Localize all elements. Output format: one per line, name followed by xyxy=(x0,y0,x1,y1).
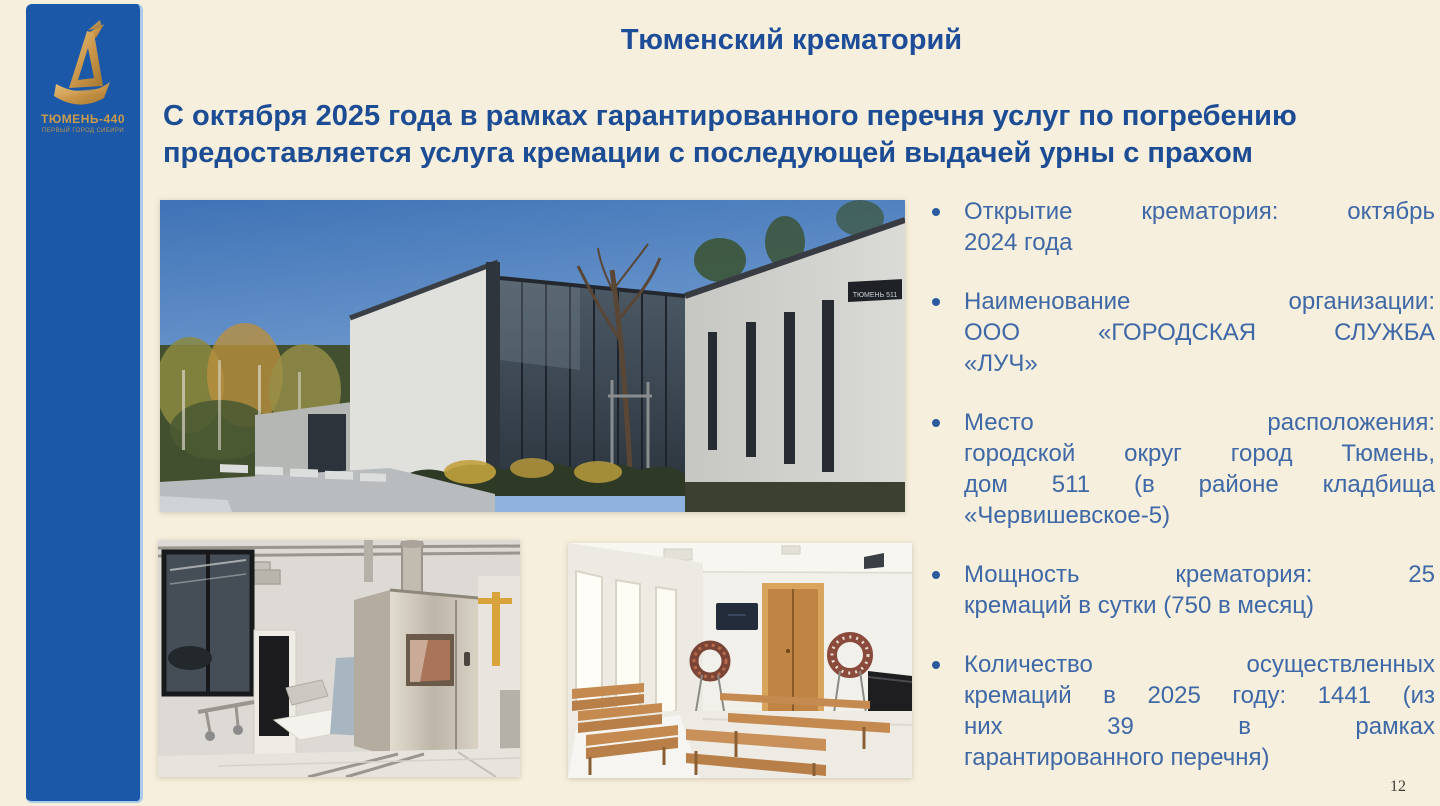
bullet-dot-icon xyxy=(932,661,940,669)
building-address-sign: ТЮМЕНЬ 511 xyxy=(848,279,902,302)
logo-tagline: ПЕРВЫЙ ГОРОД СИБИРИ xyxy=(42,128,124,134)
bullet-line: Открытие крематория: октябрь xyxy=(964,196,1435,227)
subtitle-line-2: предоставляется услуга кремации с послед… xyxy=(163,135,1437,172)
bullet-line: Мощность крематория: 25 xyxy=(964,559,1435,590)
bullet-line: ООО «ГОРОДСКАЯ СЛУЖБА xyxy=(964,317,1435,348)
photo-crematorium-building: ТЮМЕНЬ 511 xyxy=(160,200,905,512)
bullet-line: Наименование организации: xyxy=(964,286,1435,317)
bullet-line: гарантированного перечня) xyxy=(964,742,1435,773)
bullet-line: дом 511 (в районе кладбища xyxy=(964,469,1435,500)
wooden-door xyxy=(762,583,824,711)
bullet-line: Место расположения: xyxy=(964,407,1435,438)
logo-title: ТЮМЕНЬ-440 xyxy=(41,112,125,126)
bullet-dot-icon xyxy=(932,298,940,306)
ship-emblem-icon xyxy=(42,18,124,110)
bullet-line: кремаций в 2025 году: 1441 (из xyxy=(964,680,1435,711)
bullet-line: «ЛУЧ» xyxy=(964,348,1435,379)
slide-title: Тюменский крематорий xyxy=(143,24,1440,57)
list-item: Количество осуществленных кремаций в 202… xyxy=(932,649,1435,773)
bullet-dot-icon xyxy=(932,419,940,427)
bullet-line: Количество осуществленных xyxy=(964,649,1435,680)
bullet-line: 2024 года xyxy=(964,227,1435,258)
bullet-dot-icon xyxy=(932,208,940,216)
list-item: Наименование организации: ООО «ГОРОДСКАЯ… xyxy=(932,286,1435,379)
list-item: Мощность крематория: 25 кремаций в сутки… xyxy=(932,559,1435,621)
page-number: 12 xyxy=(1390,778,1406,796)
presentation-slide: ТЮМЕНЬ-440 ПЕРВЫЙ ГОРОД СИБИРИ Тюменский… xyxy=(0,0,1440,806)
photo-cremation-furnace-room xyxy=(158,540,520,777)
bullet-line: городской округ город Тюмень, xyxy=(964,438,1435,469)
list-item: Открытие крематория: октябрь 2024 года xyxy=(932,196,1435,258)
sidebar-blue-bar: ТЮМЕНЬ-440 ПЕРВЫЙ ГОРОД СИБИРИ xyxy=(26,4,143,803)
back-room xyxy=(478,576,520,756)
subtitle-line-1: С октября 2025 года в рамках гарантирова… xyxy=(163,98,1437,135)
svg-text:ТЮМЕНЬ 511: ТЮМЕНЬ 511 xyxy=(853,292,898,299)
slide-subtitle: С октября 2025 года в рамках гарантирова… xyxy=(163,98,1437,172)
list-item: Место расположения: городской округ горо… xyxy=(932,407,1435,531)
bullet-line: кремаций в сутки (750 в месяц) xyxy=(964,590,1435,621)
bullet-dot-icon xyxy=(932,571,940,579)
bullet-line: них 39 в рамках xyxy=(964,711,1435,742)
photo-farewell-hall xyxy=(568,543,912,778)
wall-tv-screen xyxy=(716,603,758,630)
bullet-line: «Червишевское-5) xyxy=(964,500,1435,531)
facts-bullet-list: Открытие крематория: октябрь 2024 года Н… xyxy=(932,196,1435,801)
observation-window xyxy=(164,552,252,694)
